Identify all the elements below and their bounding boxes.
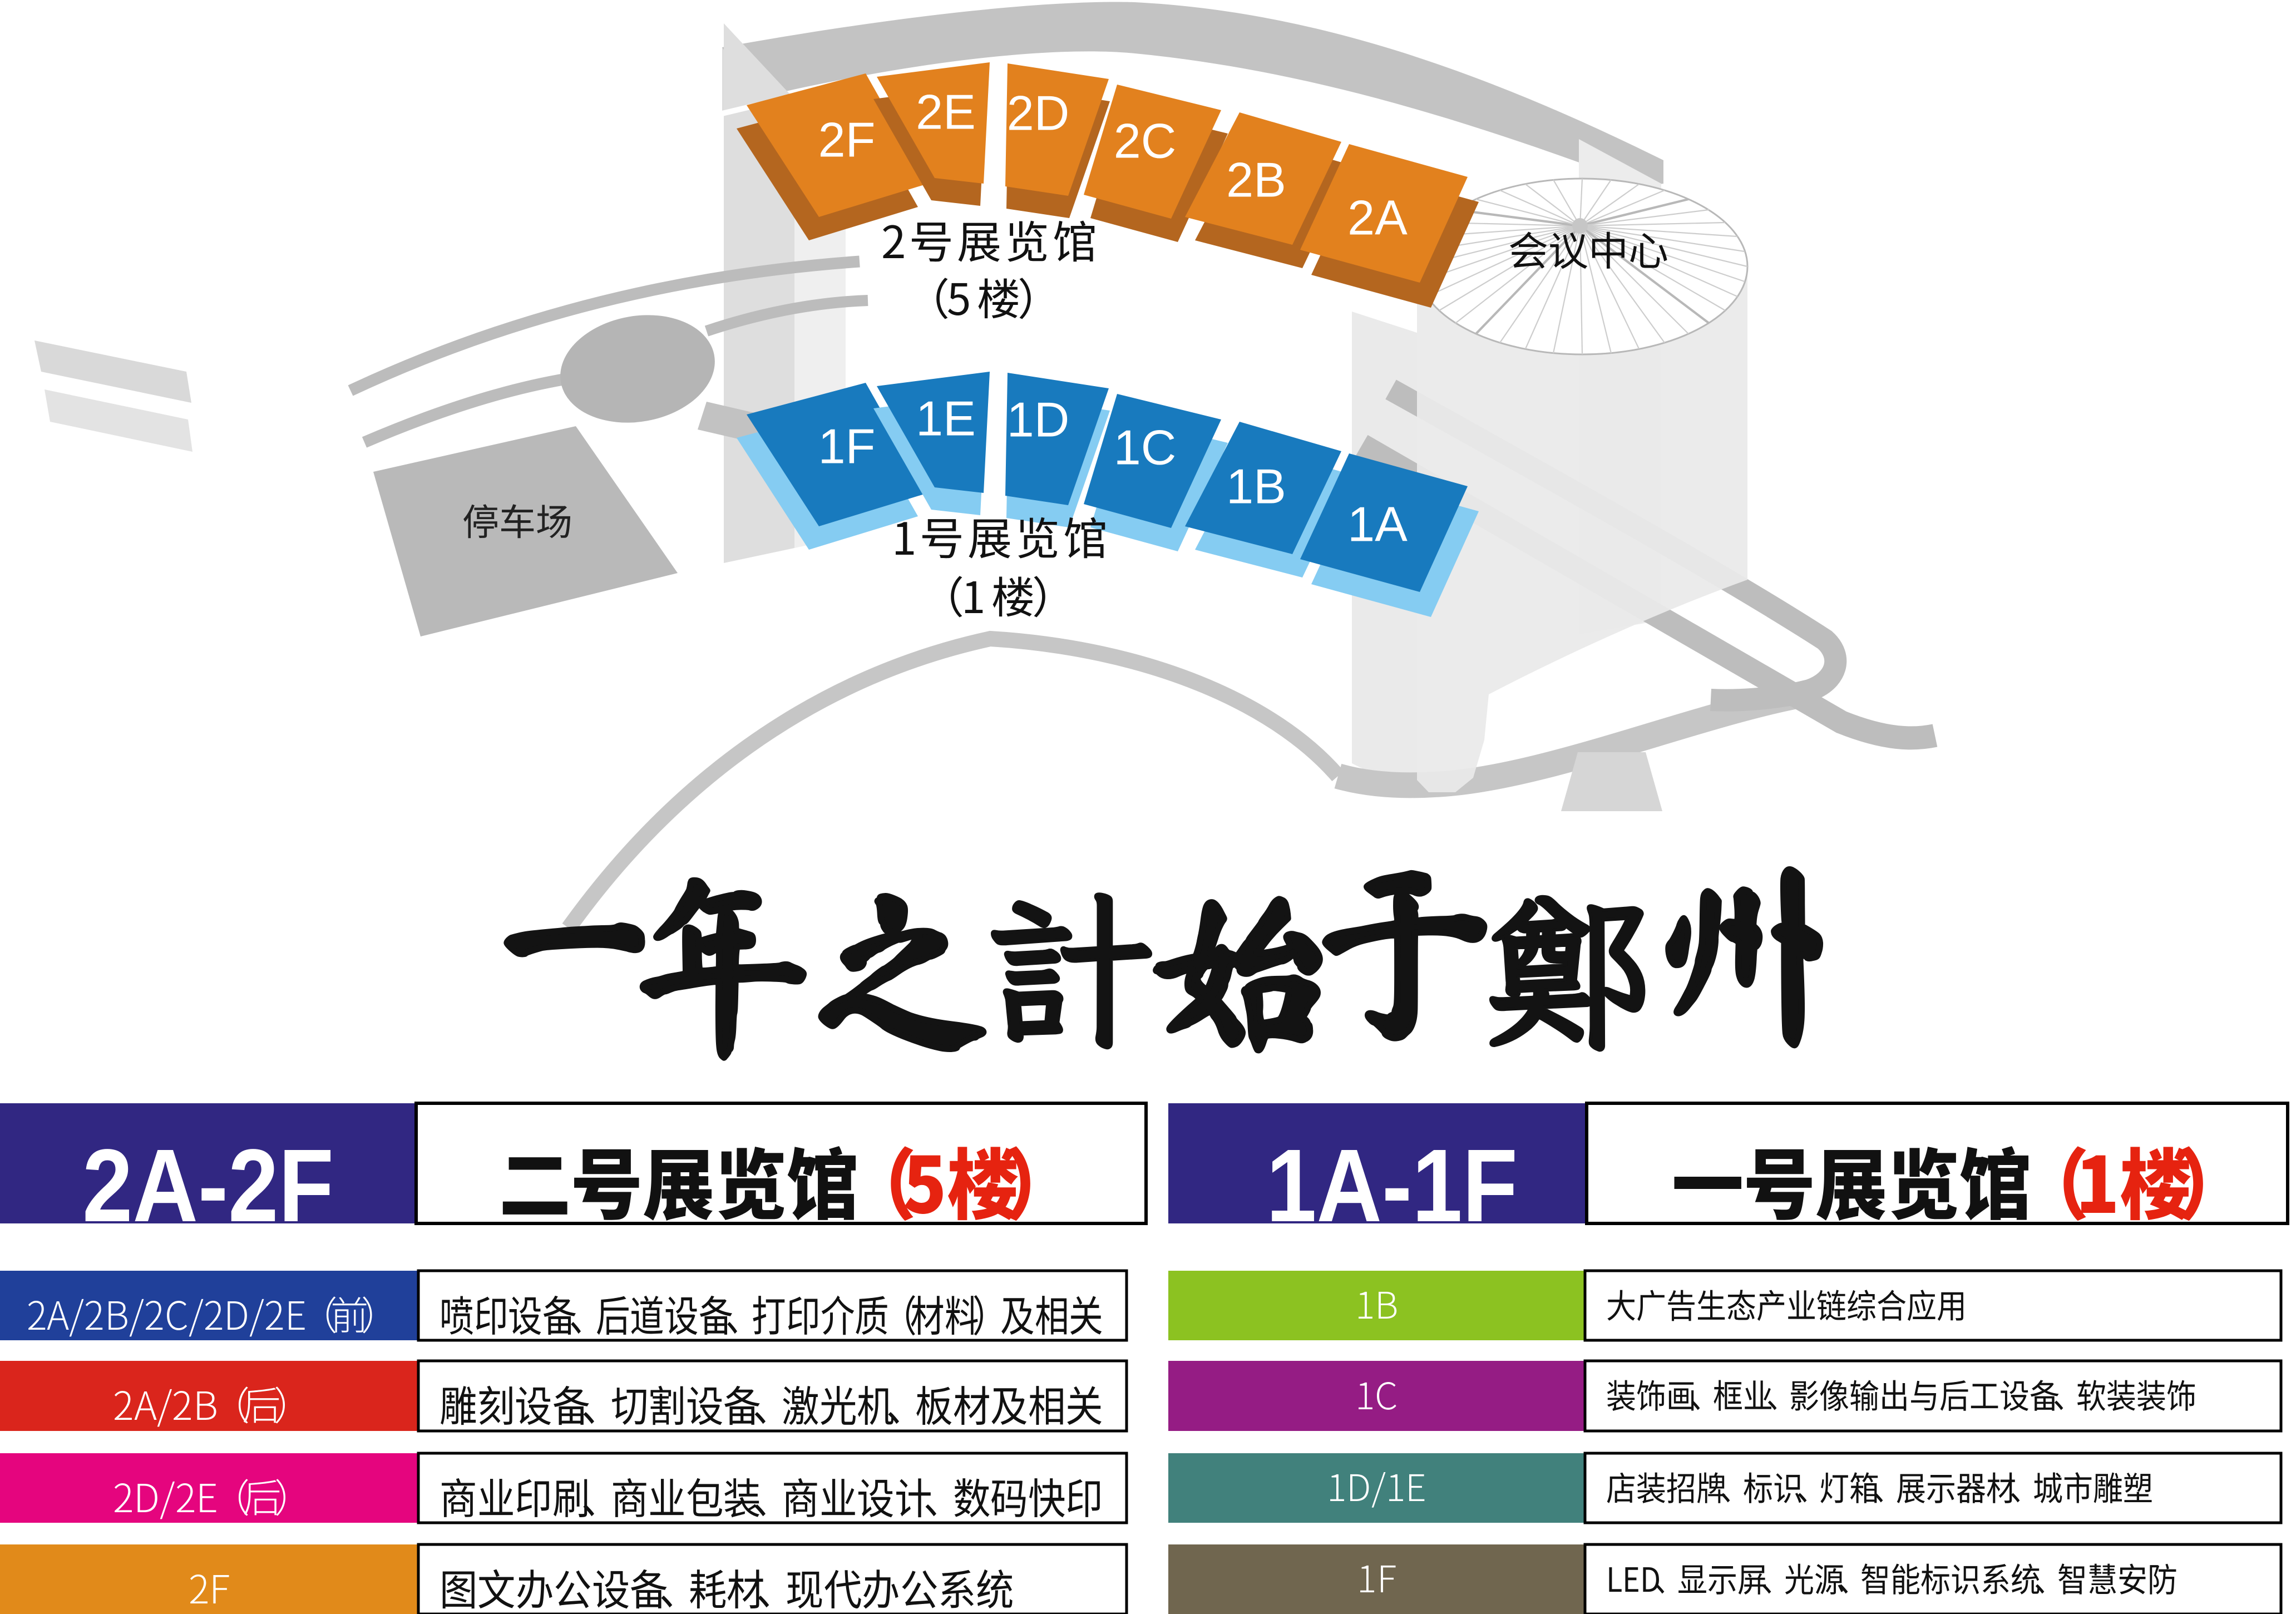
svg-text:2C: 2C <box>1114 113 1177 169</box>
svg-text:2F: 2F <box>818 112 876 167</box>
svg-text:2D: 2D <box>1007 86 1070 141</box>
svg-text:2E: 2E <box>916 85 976 140</box>
svg-text:2A-2F: 2A-2F <box>82 1128 334 1243</box>
svg-text:1F: 1F <box>818 419 876 474</box>
svg-text:1C: 1C <box>1114 420 1177 475</box>
svg-text:1D: 1D <box>1007 392 1070 447</box>
svg-text:1A: 1A <box>1347 497 1408 552</box>
svg-text:1A-1F: 1A-1F <box>1266 1128 1518 1243</box>
svg-text:1B: 1B <box>1226 459 1286 514</box>
svg-text:1E: 1E <box>916 391 976 446</box>
svg-text:2B: 2B <box>1226 152 1286 208</box>
svg-text:2A: 2A <box>1347 190 1408 245</box>
